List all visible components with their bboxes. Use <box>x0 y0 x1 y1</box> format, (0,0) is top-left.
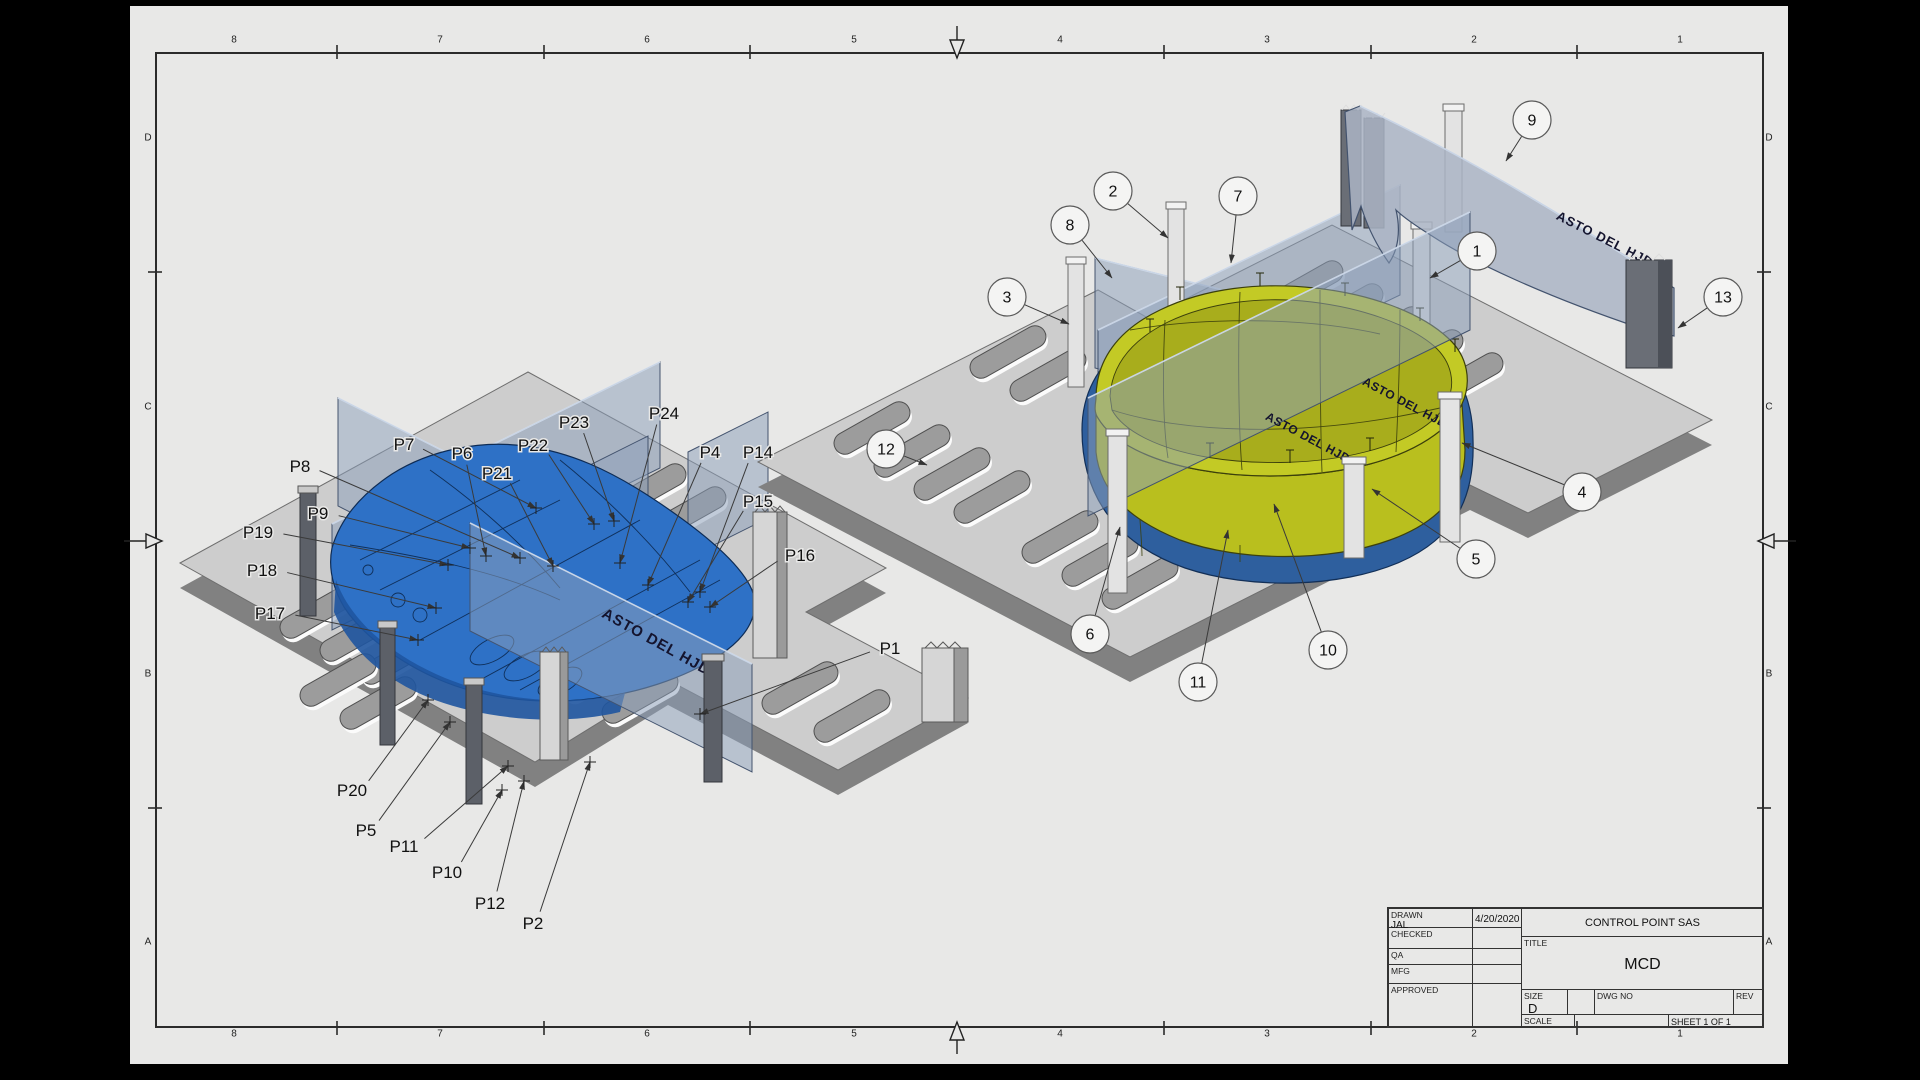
point-label-p6: P6 <box>452 444 473 463</box>
zone-col-8: 8 <box>231 1029 237 1040</box>
zone-row-c: C <box>1765 402 1772 413</box>
zone-row-a: A <box>1766 937 1773 948</box>
zone-col-6: 6 <box>644 35 650 46</box>
zone-col-3: 3 <box>1264 35 1270 46</box>
balloon-number: 2 <box>1109 184 1118 201</box>
balloon-number: 8 <box>1066 218 1075 235</box>
point-label-p7: P7 <box>394 435 415 454</box>
zone-row-d: D <box>144 133 151 144</box>
point-label-p14: P14 <box>743 443 773 462</box>
balloon-number: 1 <box>1473 244 1482 261</box>
point-label-p10: P10 <box>432 863 462 882</box>
point-label-p2: P2 <box>523 914 544 933</box>
leader-line <box>540 762 590 912</box>
drawn-label: DRAWN <box>1389 909 1472 920</box>
balloon-number: 10 <box>1319 643 1337 660</box>
balloon-4: 4 <box>1563 473 1601 511</box>
size-value: D <box>1522 1001 1567 1016</box>
balloon-6: 6 <box>1071 615 1109 653</box>
point-label-p8: P8 <box>290 457 311 476</box>
drawing-viewer: ASTO DEL HJD <box>0 0 1920 1080</box>
zone-col-5: 5 <box>851 1029 857 1040</box>
zone-col-1: 1 <box>1677 1029 1683 1040</box>
point-label-p1: P1 <box>880 639 901 658</box>
zone-col-4: 4 <box>1057 35 1063 46</box>
scale-label: SCALE <box>1522 1015 1574 1026</box>
point-label-p21: P21 <box>482 464 512 483</box>
zone-row-a: A <box>145 937 152 948</box>
mfg-label: MFG <box>1389 965 1472 976</box>
checked-label: CHECKED <box>1389 928 1472 939</box>
target-cross <box>496 784 508 796</box>
zone-col-2: 2 <box>1471 35 1477 46</box>
balloon-9: 9 <box>1513 101 1551 139</box>
balloon-number: 12 <box>877 442 895 459</box>
balloon-leader <box>1678 308 1707 328</box>
drawn-date: 4/20/2020 <box>1473 909 1522 928</box>
point-label-p5: P5 <box>356 821 377 840</box>
balloon-number: 9 <box>1528 113 1537 130</box>
leader-line <box>497 781 524 891</box>
balloon-2: 2 <box>1094 172 1132 210</box>
zone-col-5: 5 <box>851 35 857 46</box>
balloon-number: 3 <box>1003 290 1012 307</box>
balloon-8: 8 <box>1051 206 1089 244</box>
drawing-title: MCD <box>1522 956 1763 974</box>
balloon-7: 7 <box>1219 177 1257 215</box>
dwg-no-label: DWG NO <box>1595 990 1733 1001</box>
zone-row-b: B <box>1766 669 1773 680</box>
balloon-number: 11 <box>1190 675 1207 692</box>
balloon-leader <box>1128 204 1168 238</box>
qa-label: QA <box>1389 949 1472 960</box>
point-label-p20: P20 <box>337 781 367 800</box>
company-name: CONTROL POINT SAS <box>1522 909 1763 937</box>
size-label: SIZE <box>1522 990 1567 1001</box>
zone-col-4: 4 <box>1057 1029 1063 1040</box>
balloon-leader <box>1231 215 1236 263</box>
title-label: TITLE <box>1522 937 1763 948</box>
title-block: DRAWN JAL 4/20/2020 CHECKED QA MFG APPRO… <box>1387 907 1764 1028</box>
balloon-10: 10 <box>1309 631 1347 669</box>
balloon-3: 3 <box>988 278 1026 316</box>
zone-col-6: 6 <box>644 1029 650 1040</box>
balloon-13: 13 <box>1704 278 1742 316</box>
target-cross <box>584 756 596 768</box>
zone-col-7: 7 <box>437 1029 443 1040</box>
riser-block-13 <box>1626 254 1672 368</box>
point-label-p19: P19 <box>243 523 273 542</box>
point-label-p17: P17 <box>255 604 285 623</box>
sheet-number: SHEET 1 OF 1 <box>1669 1015 1763 1027</box>
zone-col-1: 1 <box>1677 35 1683 46</box>
point-label-p23: P23 <box>559 413 589 432</box>
balloon-number: 5 <box>1472 552 1481 569</box>
zone-row-b: B <box>145 669 152 680</box>
point-label-p22: P22 <box>518 436 548 455</box>
balloon-1: 1 <box>1458 232 1496 270</box>
balloon-number: 6 <box>1086 627 1095 644</box>
rev-label: REV <box>1734 990 1763 1001</box>
balloon-number: 13 <box>1714 290 1732 307</box>
balloon-11: 11 <box>1179 663 1217 701</box>
point-label-p11: P11 <box>390 837 419 856</box>
approved-label: APPROVED <box>1389 984 1472 995</box>
zone-row-d: D <box>1765 133 1772 144</box>
balloon-number: 7 <box>1234 189 1243 206</box>
balloon-5: 5 <box>1457 540 1495 578</box>
balloon-number: 4 <box>1578 485 1587 502</box>
zone-col-2: 2 <box>1471 1029 1477 1040</box>
zone-col-7: 7 <box>437 35 443 46</box>
point-label-p24: P24 <box>649 404 679 423</box>
zone-row-c: C <box>144 402 151 413</box>
balloon-12: 12 <box>867 430 905 468</box>
point-label-p18: P18 <box>247 561 277 580</box>
zone-col-8: 8 <box>231 35 237 46</box>
point-label-p16: P16 <box>785 546 815 565</box>
point-label-p15: P15 <box>743 492 773 511</box>
point-label-p4: P4 <box>700 443 721 462</box>
zone-col-3: 3 <box>1264 1029 1270 1040</box>
balloon-leader <box>1506 136 1522 161</box>
point-label-p9: P9 <box>308 504 329 523</box>
point-label-p12: P12 <box>475 894 505 913</box>
